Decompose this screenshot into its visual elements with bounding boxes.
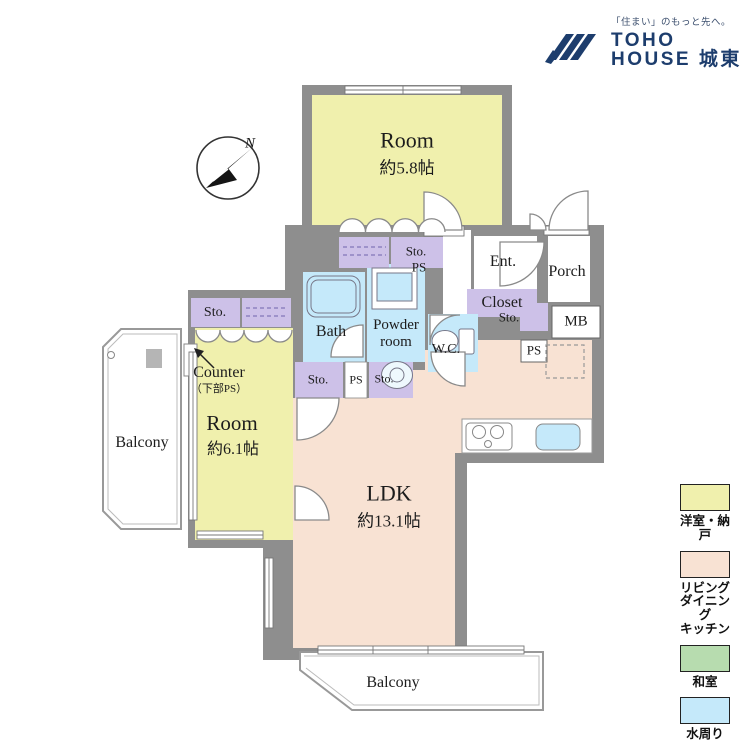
- legend-item: 和室: [676, 645, 734, 690]
- porch-floor: [548, 236, 590, 302]
- legend-swatch: [680, 645, 730, 672]
- stove-icon: [466, 423, 512, 450]
- storage-box: [295, 362, 343, 398]
- entry-door-leaf-small: [530, 214, 546, 230]
- washing-machine-icon: [382, 362, 413, 389]
- toho-house-logo: 「住まい」のもっと先へ。 TOHO HOUSE 城東: [545, 12, 750, 72]
- logo-tagline: 「住まい」のもっと先へ。: [611, 14, 742, 28]
- storage-box: [391, 237, 443, 268]
- legend-swatch: [680, 697, 730, 724]
- sink-icon: [372, 268, 417, 309]
- kitchen-sink-icon: [536, 424, 580, 450]
- drain-icon: [108, 352, 115, 359]
- ps-box: [521, 340, 547, 362]
- legend: 洋室・納戸リビング ダイニング キッチン和室水周り収納: [676, 484, 734, 750]
- floor-plan-drawing: [0, 0, 750, 750]
- legend-label: リビング ダイニング キッチン: [676, 582, 734, 637]
- bathtub-icon: [307, 276, 360, 317]
- brand-name-top: TOHO: [611, 31, 742, 50]
- compass-icon: [197, 137, 259, 199]
- entry-door-leaf-large: [549, 191, 588, 230]
- legend-item: リビング ダイニング キッチン: [676, 551, 734, 637]
- legend-label: 和室: [676, 676, 734, 690]
- storage-box: [520, 303, 548, 331]
- ac-unit-icon: [146, 349, 162, 368]
- room-left-floor: [195, 328, 293, 540]
- legend-item: 水周り: [676, 697, 734, 742]
- legend-label: 水周り: [676, 728, 734, 742]
- storage-box: [242, 298, 291, 327]
- balcony-bottom: [300, 652, 543, 710]
- legend-item: 洋室・納戸: [676, 484, 734, 543]
- room-top-floor: [312, 95, 502, 225]
- balcony-left: [103, 329, 181, 529]
- ps-box: [345, 362, 367, 398]
- brand-name-bottom: HOUSE 城東: [611, 50, 742, 69]
- storage-box: [339, 237, 389, 268]
- legend-swatch: [680, 551, 730, 578]
- legend-label: 洋室・納戸: [676, 515, 734, 543]
- legend-swatch: [680, 484, 730, 511]
- mailbox-box: [552, 306, 600, 338]
- floor-plan-page: 「住まい」のもっと先へ。 TOHO HOUSE 城東 N Room 約5.8帖 …: [0, 0, 750, 750]
- storage-box: [191, 298, 240, 327]
